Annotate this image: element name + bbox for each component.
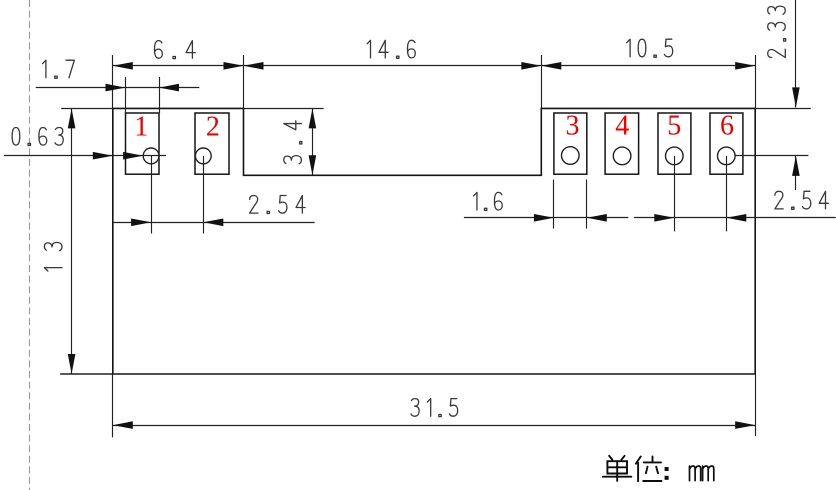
svg-text:3: 3: [566, 111, 580, 142]
svg-text:1: 1: [134, 111, 148, 142]
svg-text:6: 6: [720, 111, 734, 142]
svg-text:5: 5: [667, 111, 681, 142]
svg-text:4: 4: [615, 111, 629, 142]
svg-text:2: 2: [206, 111, 220, 142]
